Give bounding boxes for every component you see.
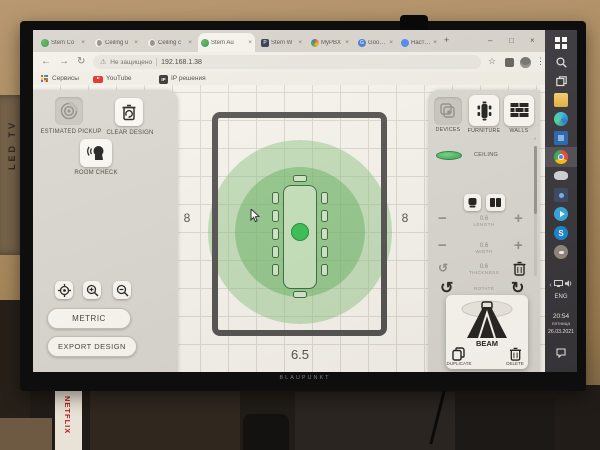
windows-taskbar: S ‹ ENG 20:54 пятница 26.03.2021 xyxy=(545,30,577,372)
file-explorer-icon[interactable] xyxy=(554,93,568,107)
tab-google[interactable]: G Google × xyxy=(355,33,396,52)
length-label: LENGTH xyxy=(464,223,504,228)
new-tab-button[interactable]: + xyxy=(444,35,449,45)
chair[interactable] xyxy=(272,192,279,204)
monitor-brand: BLAUPUNKT xyxy=(33,375,577,381)
cardboard-box xyxy=(0,418,52,450)
ceiling-device-item-label[interactable]: CEILING xyxy=(464,152,508,158)
chair[interactable] xyxy=(272,246,279,258)
room-dim-bottom: 6.5 xyxy=(287,347,313,362)
globe-favicon xyxy=(148,39,156,47)
export-design-button[interactable]: EXPORT DESIGN xyxy=(47,336,137,357)
metric-button[interactable]: METRIC xyxy=(47,308,131,329)
display-tray-icon[interactable] xyxy=(554,280,563,287)
chair-icon xyxy=(467,197,478,208)
chair[interactable] xyxy=(321,264,328,276)
tab-close-icon[interactable]: × xyxy=(345,39,349,46)
zoom-out-button[interactable] xyxy=(113,281,131,299)
rotate-ccw-small-button[interactable]: ↺ xyxy=(438,261,448,275)
devices-icon xyxy=(440,103,457,120)
not-secure-icon: ⚠ xyxy=(100,58,106,66)
browser-window: Stem Co × Ceiling u × Ceiling c × Stem A… xyxy=(33,30,545,372)
edge-icon[interactable] xyxy=(554,112,568,126)
zoom-in-icon xyxy=(86,284,99,297)
tab-stem-audio-active[interactable]: Stem Au × xyxy=(198,33,255,52)
furniture-tab-label: FURNITURE xyxy=(464,128,504,134)
tray-icons[interactable]: ‹ xyxy=(545,280,577,289)
chair[interactable] xyxy=(272,210,279,222)
trash-refresh-icon xyxy=(121,103,137,121)
tab-close-icon[interactable]: × xyxy=(248,39,252,46)
scrollbar[interactable] xyxy=(534,146,537,276)
mouse-cursor xyxy=(250,209,260,223)
room-dim-right: 8 xyxy=(397,211,413,225)
webcam xyxy=(400,15,428,31)
table-type-button[interactable] xyxy=(486,194,505,211)
notification-center-icon[interactable] xyxy=(554,346,568,360)
ceiling-device[interactable] xyxy=(291,223,309,241)
crosshair-icon xyxy=(58,284,71,297)
radar-icon xyxy=(60,102,78,120)
extension-icon[interactable] xyxy=(505,58,514,67)
cabinet xyxy=(455,398,555,450)
zoom-in-button[interactable] xyxy=(83,281,101,299)
chair-type-button[interactable] xyxy=(464,194,481,211)
left-panel: ESTIMATED PICKUP CLEAR DESIGN xyxy=(33,90,178,372)
beam-device-illustration xyxy=(459,298,515,340)
chair[interactable] xyxy=(321,246,328,258)
width-label: WIDTH xyxy=(464,250,504,255)
width-value: 0.6 xyxy=(464,243,504,249)
delete-label: DELETE xyxy=(501,361,529,366)
divider xyxy=(156,58,157,66)
bookmark-youtube[interactable]: YouTube xyxy=(106,75,132,82)
brick-wall-icon xyxy=(510,102,529,119)
length-plus-button[interactable]: + xyxy=(514,210,523,227)
photo-scene: LED TV NETFLIX BLAUPUNKT Stem Co × Ceili… xyxy=(0,0,600,450)
stem-favicon xyxy=(201,39,209,47)
walls-tab-label: WALLS xyxy=(500,128,538,134)
width-minus-button[interactable]: − xyxy=(438,237,447,254)
photos-app-icon[interactable] xyxy=(554,131,568,145)
onedrive-icon[interactable] xyxy=(554,171,568,180)
selected-device-card: BEAM DUPLICATE DELE xyxy=(446,295,528,369)
devices-tab-button[interactable] xyxy=(434,97,462,125)
skype-icon[interactable]: S xyxy=(554,226,568,240)
tab-mypbx[interactable]: MyPBX × xyxy=(308,33,352,52)
delete-icon[interactable] xyxy=(509,347,522,361)
devices-tab-label: DEVICES xyxy=(428,127,468,133)
mypbx-favicon xyxy=(311,39,319,47)
app-icon[interactable] xyxy=(554,188,568,202)
tab-close-icon[interactable]: × xyxy=(298,39,302,46)
language-indicator[interactable]: ENG xyxy=(545,294,577,300)
bookmark-star-icon[interactable]: ☆ xyxy=(488,56,496,67)
furniture-tab-button[interactable] xyxy=(469,95,499,126)
tab-ceiling-1[interactable]: Ceiling u × xyxy=(92,33,141,52)
tv-box-label: LED TV xyxy=(7,120,17,170)
chair[interactable] xyxy=(293,291,307,298)
menu-dots-icon[interactable]: ⋮ xyxy=(536,56,545,67)
room-check-label: ROOM CHECK xyxy=(63,170,129,177)
youtube-icon[interactable] xyxy=(93,76,103,83)
start-icon[interactable] xyxy=(554,36,568,50)
tab-settings[interactable]: Настрой × xyxy=(398,33,440,52)
clear-design-button[interactable] xyxy=(115,98,143,126)
clock-weekday: пятница xyxy=(545,322,577,327)
design-canvas[interactable]: 8 8 6.5 xyxy=(33,85,545,372)
chair[interactable] xyxy=(321,228,328,240)
ip-badge-icon[interactable]: IP xyxy=(159,75,168,84)
profile-avatar[interactable] xyxy=(520,57,531,68)
tab-close-icon[interactable]: × xyxy=(433,39,437,46)
table-icon xyxy=(489,197,502,208)
netflix-label: NETFLIX xyxy=(63,396,72,434)
tab-close-icon[interactable]: × xyxy=(134,39,138,46)
not-secure-label: Не защищено xyxy=(110,59,152,66)
gear-favicon xyxy=(401,39,409,47)
walls-tab-button[interactable] xyxy=(504,95,534,126)
waste-bin xyxy=(243,414,289,450)
clock-time[interactable]: 20:54 xyxy=(545,313,577,320)
p-favicon: P xyxy=(261,39,269,47)
minimize-button[interactable]: – xyxy=(488,36,492,45)
rotate-label: ROTATE xyxy=(464,287,504,292)
back-icon[interactable]: ← xyxy=(41,56,51,67)
tab-stem-control[interactable]: Stem Co × xyxy=(38,33,88,52)
furniture-delete-icon[interactable] xyxy=(513,261,526,276)
chrome-icon[interactable] xyxy=(554,150,568,164)
thickness-value: 0.6 xyxy=(464,264,504,270)
duplicate-label: DUPLICATE xyxy=(442,361,476,366)
reload-icon[interactable]: ↻ xyxy=(77,56,85,67)
address-bar[interactable]: ⚠ Не защищено 192.168.1.38 xyxy=(93,55,481,69)
tab-stem-w[interactable]: P Stem W × xyxy=(258,33,305,52)
chair[interactable] xyxy=(272,228,279,240)
chair[interactable] xyxy=(321,192,328,204)
bookmark-services[interactable]: Сервисы xyxy=(52,75,79,82)
url-text: 192.168.1.38 xyxy=(161,59,202,66)
cabinet xyxy=(90,390,240,450)
globe-favicon xyxy=(95,39,103,47)
volume-tray-icon[interactable] xyxy=(565,280,573,287)
gimp-icon[interactable] xyxy=(554,245,568,259)
width-plus-button[interactable]: + xyxy=(514,237,523,254)
close-button[interactable]: × xyxy=(530,36,535,45)
center-view-button[interactable] xyxy=(55,281,73,299)
estimated-pickup-button[interactable] xyxy=(55,97,83,125)
length-value: 0.6 xyxy=(464,216,504,222)
tab-ceiling-2[interactable]: Ceiling c × xyxy=(145,33,195,52)
duplicate-icon[interactable] xyxy=(452,347,465,361)
zoom-out-icon xyxy=(116,284,129,297)
services-grid-icon[interactable] xyxy=(41,75,48,82)
tab-close-icon[interactable]: × xyxy=(188,39,192,46)
room-dim-left: 8 xyxy=(179,211,195,225)
ceiling-device-item-icon[interactable] xyxy=(436,151,462,160)
chair[interactable] xyxy=(272,264,279,276)
task-view-icon[interactable] xyxy=(554,74,568,88)
tab-close-icon[interactable]: × xyxy=(389,39,393,46)
stem-favicon xyxy=(41,39,49,47)
search-icon[interactable] xyxy=(554,55,568,69)
maximize-button[interactable]: □ xyxy=(509,36,514,45)
clear-design-label: CLEAR DESIGN xyxy=(92,130,168,137)
right-panel: DEVICES FURNITURE WALLS CEILING ^ xyxy=(428,90,540,372)
chair[interactable] xyxy=(293,175,307,182)
screen: Stem Co × Ceiling u × Ceiling c × Stem A… xyxy=(33,30,577,372)
bookmark-ip[interactable]: IP решения xyxy=(171,75,206,82)
thickness-label: THICKNESS xyxy=(464,271,504,276)
telegram-icon[interactable] xyxy=(554,207,568,221)
google-favicon: G xyxy=(358,39,366,47)
speaking-head-icon xyxy=(86,144,106,162)
tray-chevron-icon[interactable]: ‹ xyxy=(549,282,551,289)
room-check-button[interactable] xyxy=(80,139,112,167)
scrollbar-thumb[interactable] xyxy=(534,146,537,214)
clock-date[interactable]: 26.03.2021 xyxy=(545,329,577,335)
furniture-icon xyxy=(475,101,494,121)
tab-close-icon[interactable]: × xyxy=(81,39,85,46)
scroll-up-icon[interactable]: ^ xyxy=(531,138,539,143)
forward-icon[interactable]: → xyxy=(59,56,69,67)
chair[interactable] xyxy=(321,210,328,222)
length-minus-button[interactable]: − xyxy=(438,210,447,227)
